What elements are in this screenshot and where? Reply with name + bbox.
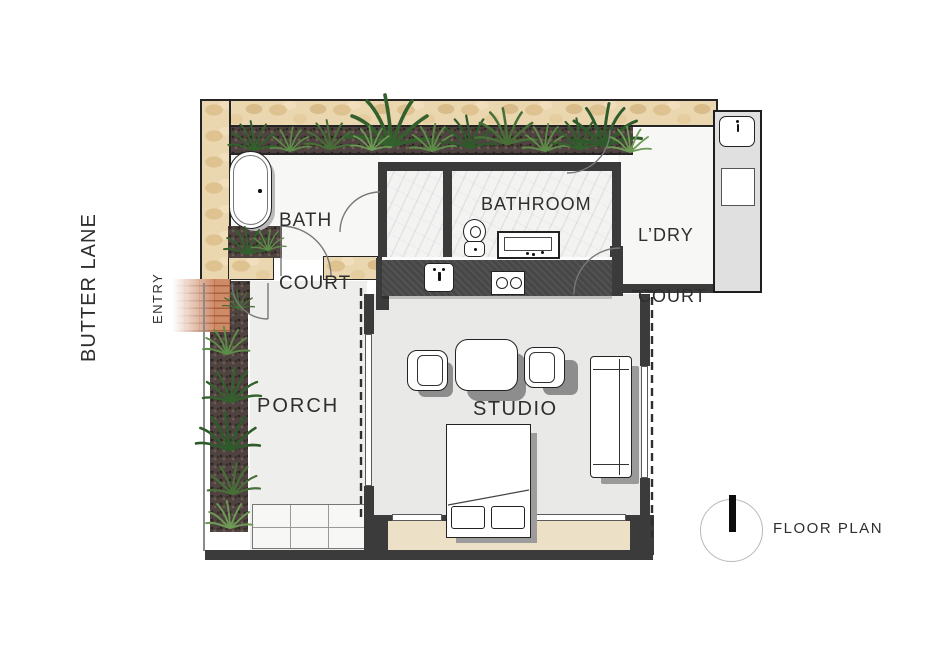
dining-table-icon bbox=[455, 339, 518, 391]
drawing-title: FLOOR PLAN bbox=[773, 521, 883, 538]
porch-bench-grid bbox=[252, 504, 366, 549]
room-label-laundry-court: L’DRY COURT bbox=[638, 185, 707, 346]
stone-wall-left bbox=[200, 99, 231, 283]
laundry-sink-icon bbox=[719, 116, 755, 147]
entry-brick-path bbox=[170, 279, 230, 332]
studio-window-east bbox=[641, 366, 648, 478]
studio-window-south-b bbox=[532, 514, 626, 521]
entry-label: ENTRY bbox=[151, 264, 166, 324]
shower-partition-wall bbox=[443, 168, 452, 262]
bathroom-wall-left bbox=[378, 162, 387, 262]
boundary-line-left bbox=[203, 283, 205, 551]
street-label: BUTTER LANE bbox=[78, 232, 100, 362]
room-label-bathroom: BATHROOM bbox=[481, 194, 592, 214]
studio-window-south-a bbox=[392, 514, 442, 521]
bathroom-wall-top bbox=[378, 162, 618, 171]
floor-plan-drawing: BUTTER LANE ENTRY BATH COURT BATHROOM L’… bbox=[0, 0, 940, 664]
chair-icon bbox=[524, 347, 565, 388]
pillow bbox=[491, 506, 525, 529]
stone-wall-segment-a bbox=[228, 256, 274, 280]
studio-corner-se bbox=[630, 515, 654, 555]
pillow bbox=[451, 506, 485, 529]
outer-wall-bottom bbox=[205, 550, 653, 560]
cooktop-icon bbox=[491, 271, 525, 295]
laundry-strip bbox=[713, 110, 762, 293]
toilet-tank bbox=[464, 241, 485, 257]
kitchen-sink-icon bbox=[424, 263, 454, 292]
vanity-sink-icon bbox=[497, 231, 560, 259]
garden-bed-entry bbox=[228, 281, 250, 313]
garden-bed-bathcourt bbox=[228, 226, 282, 258]
garden-bed-top bbox=[231, 127, 633, 155]
washer-icon bbox=[721, 168, 755, 206]
bed-icon bbox=[446, 424, 531, 538]
room-label-bath-court: BATH COURT bbox=[279, 167, 351, 337]
room-label-porch: PORCH bbox=[257, 395, 339, 417]
garden-bed-left bbox=[210, 310, 248, 532]
brick-fade bbox=[170, 279, 230, 332]
bathtub-icon bbox=[229, 151, 272, 229]
studio-wall-east-bottom bbox=[640, 478, 650, 520]
stone-wall-top bbox=[200, 99, 718, 127]
studio-corner-sw bbox=[364, 515, 388, 555]
north-arrow-needle bbox=[729, 495, 736, 532]
studio-window-west bbox=[365, 334, 372, 486]
studio-wall-west-top bbox=[364, 294, 374, 334]
sofa-icon bbox=[590, 356, 632, 478]
room-label-studio: STUDIO bbox=[473, 398, 558, 420]
chair-icon bbox=[407, 350, 448, 391]
